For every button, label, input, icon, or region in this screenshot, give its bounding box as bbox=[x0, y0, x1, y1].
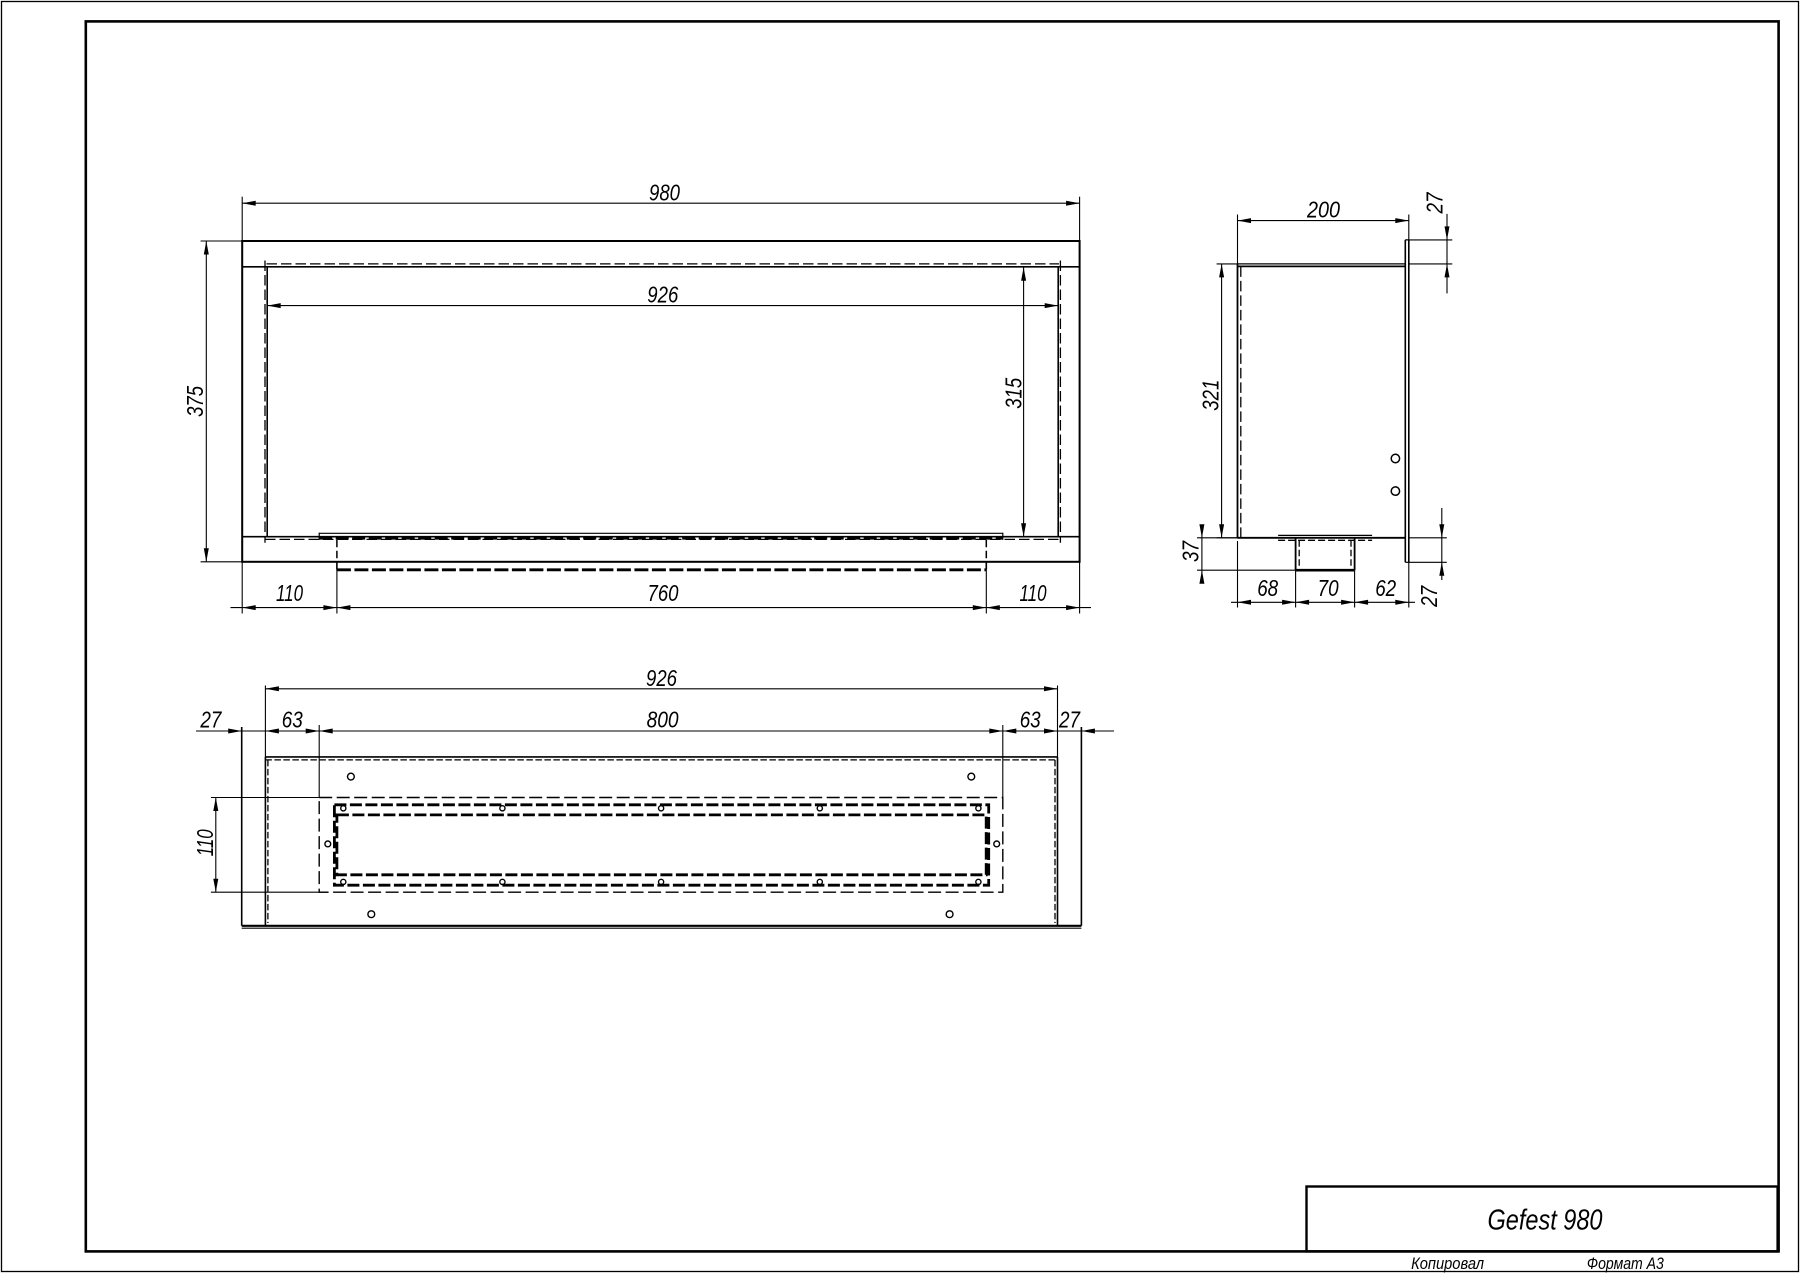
svg-text:Копировал: Копировал bbox=[1411, 1255, 1484, 1273]
svg-text:200: 200 bbox=[1306, 197, 1340, 223]
svg-text:62: 62 bbox=[1375, 575, 1396, 601]
svg-text:27: 27 bbox=[1058, 706, 1081, 732]
svg-text:980: 980 bbox=[649, 179, 680, 205]
svg-text:27: 27 bbox=[1416, 585, 1442, 608]
svg-text:110: 110 bbox=[276, 580, 303, 606]
svg-text:926: 926 bbox=[647, 282, 678, 308]
svg-text:63: 63 bbox=[282, 706, 303, 732]
svg-text:27: 27 bbox=[200, 706, 223, 732]
svg-text:926: 926 bbox=[646, 665, 677, 691]
svg-text:Gefest 980: Gefest 980 bbox=[1488, 1205, 1603, 1237]
svg-text:68: 68 bbox=[1257, 575, 1278, 601]
svg-text:800: 800 bbox=[647, 706, 679, 732]
svg-text:760: 760 bbox=[648, 580, 679, 606]
svg-text:315: 315 bbox=[1001, 378, 1027, 409]
svg-text:27: 27 bbox=[1421, 192, 1447, 215]
svg-text:63: 63 bbox=[1020, 706, 1041, 732]
svg-text:110: 110 bbox=[1020, 580, 1047, 606]
svg-text:70: 70 bbox=[1318, 575, 1339, 601]
svg-text:Формат А3: Формат А3 bbox=[1587, 1255, 1665, 1273]
svg-text:110: 110 bbox=[192, 829, 218, 856]
svg-text:37: 37 bbox=[1178, 540, 1204, 562]
svg-text:321: 321 bbox=[1198, 380, 1224, 411]
svg-text:375: 375 bbox=[182, 386, 208, 417]
